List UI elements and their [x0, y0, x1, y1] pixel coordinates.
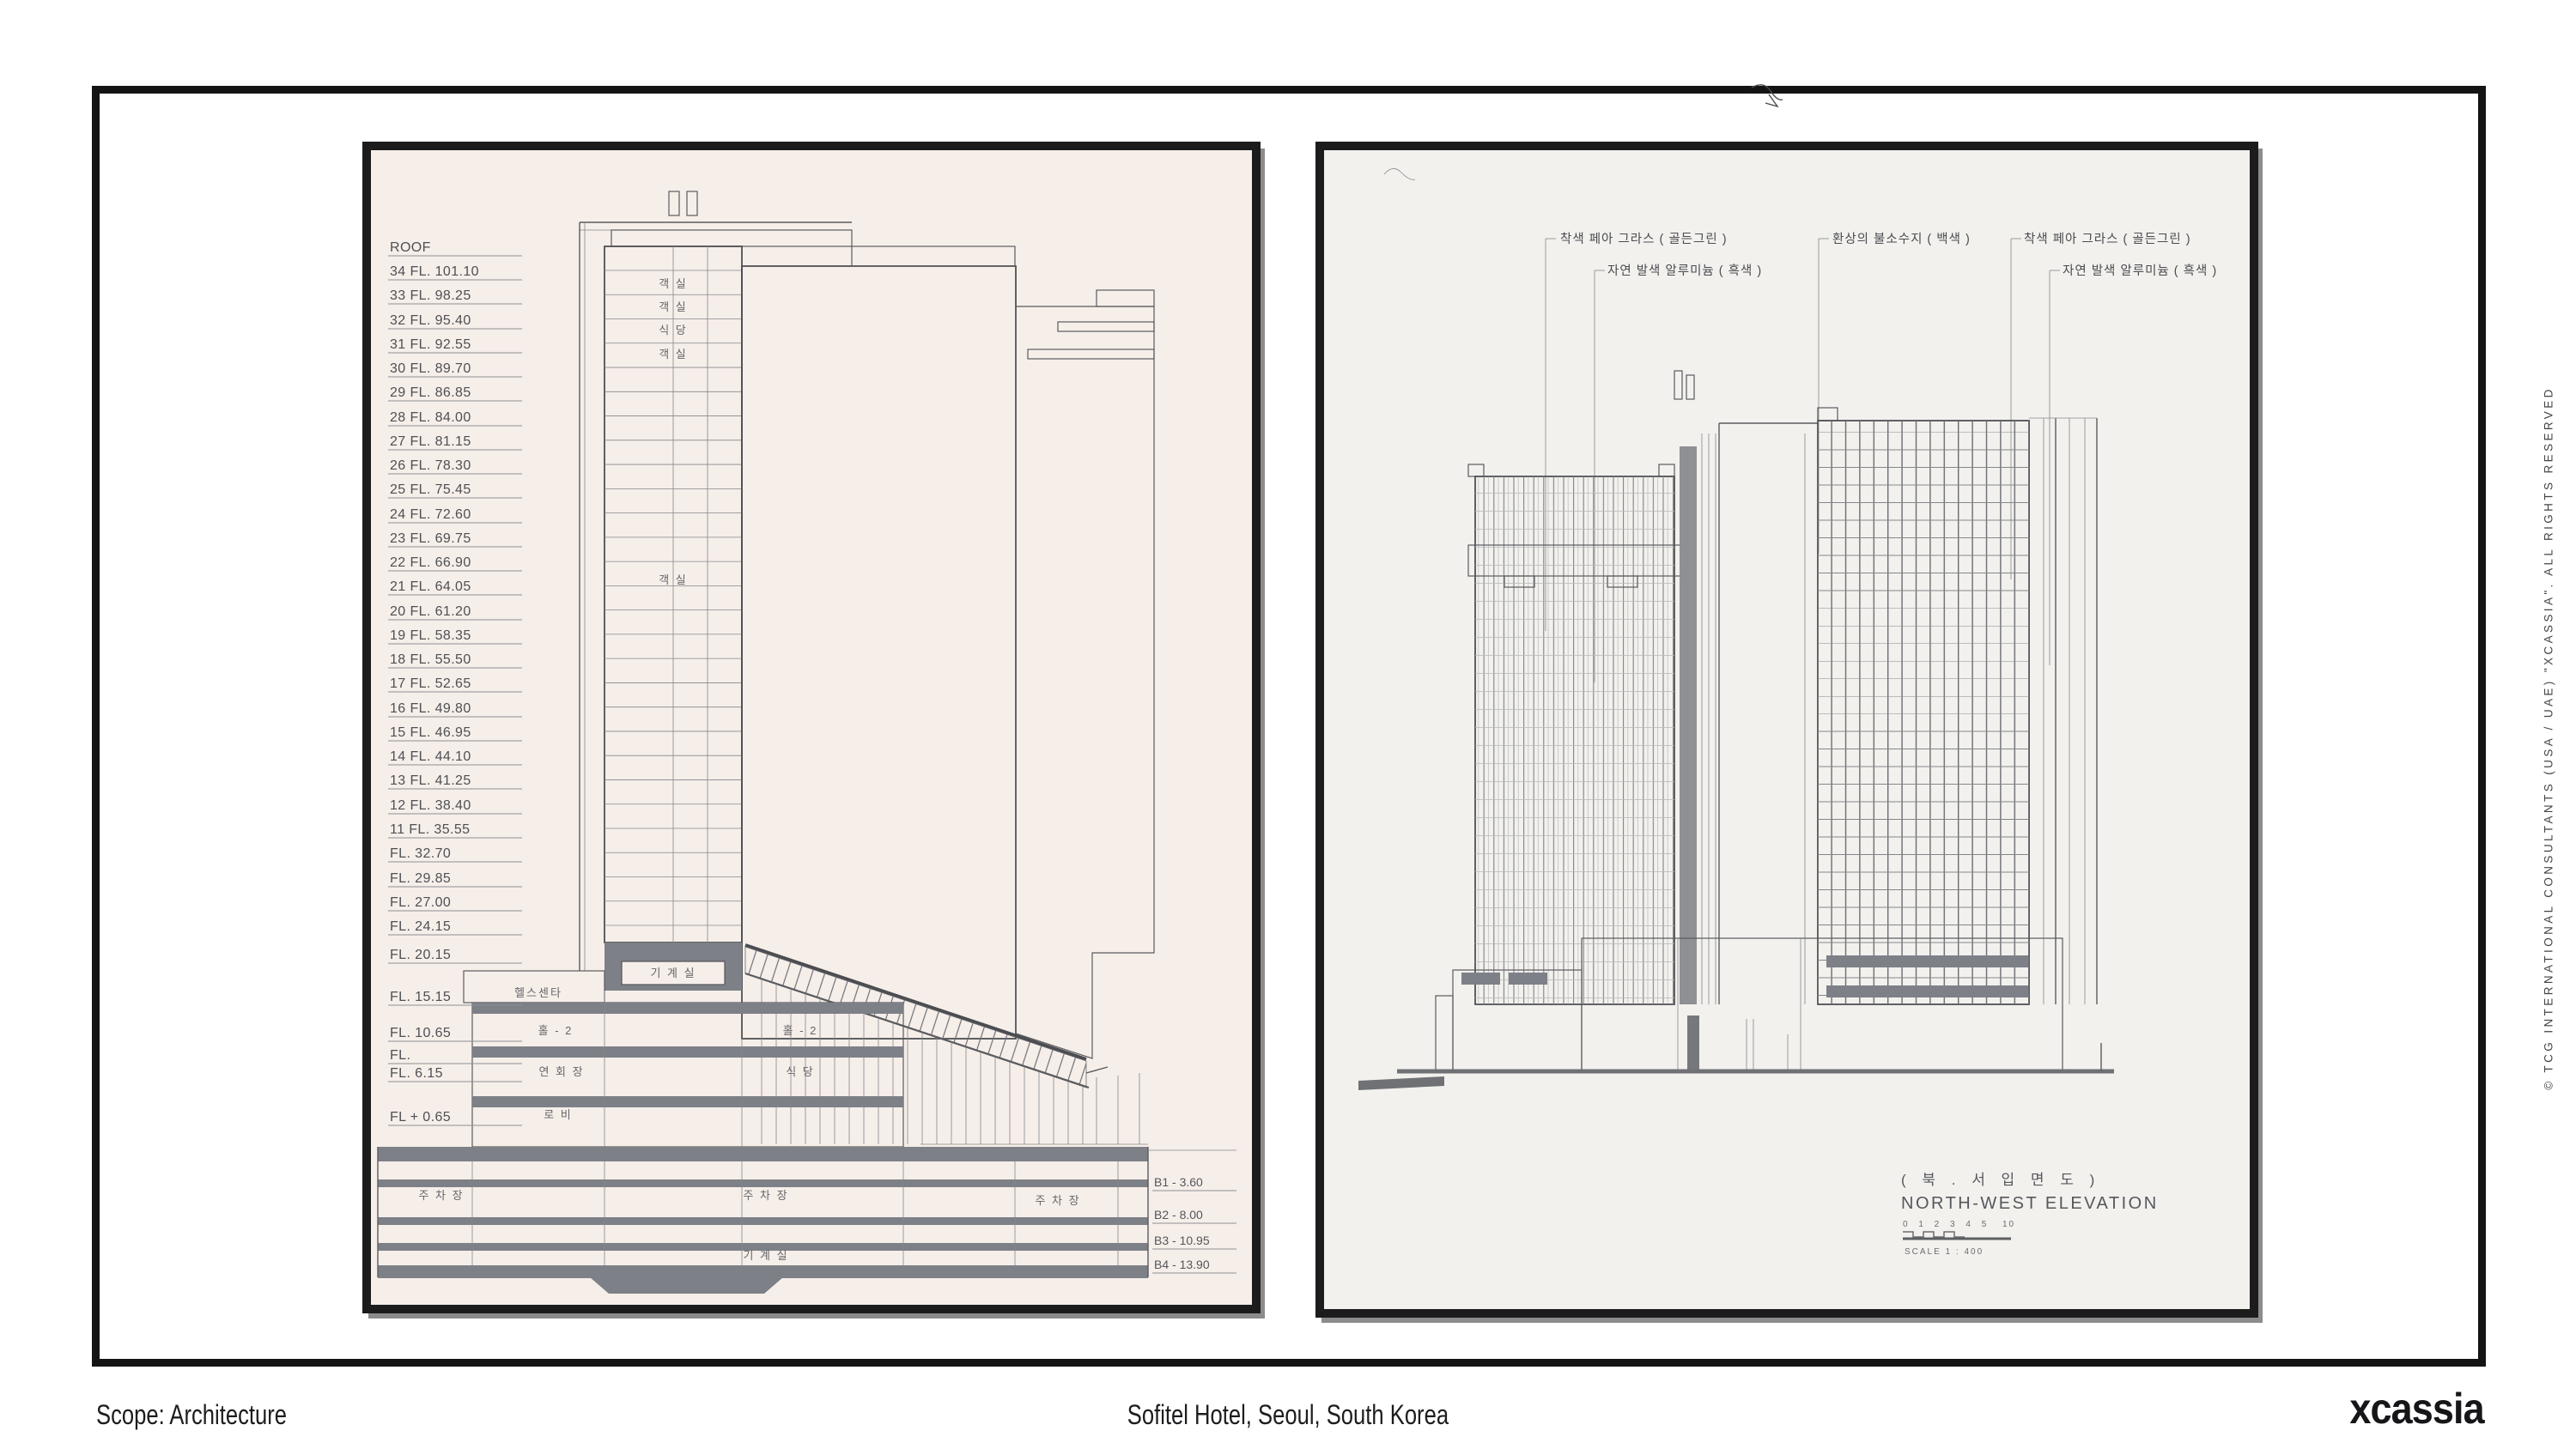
annotation-label: 환상의 불소수지 ( 백색 ) [1832, 232, 1971, 246]
room-label: 식 당 [786, 1065, 815, 1078]
floor-label: 11 FL. 35.55 [390, 822, 470, 837]
floor-label: 19 FL. 58.35 [390, 628, 471, 643]
right-tower-dark [1818, 408, 2029, 1004]
floor-label: FL. 32.70 [390, 846, 451, 861]
basement-level-labels: B1 - 3.60B2 - 8.00B3 - 10.95B4 - 13.90 [1152, 1175, 1236, 1273]
basement-label: B2 - 8.00 [1154, 1208, 1203, 1222]
floor-label: FL. 29.85 [390, 871, 451, 886]
tower-main-grid [742, 246, 1016, 1039]
right-drawing-panel: 착색 페아 그라스 ( 골든그린 )자연 발색 알루미늄 ( 흑색 )환상의 불… [1315, 142, 2258, 1318]
floor-label: 24 FL. 72.60 [390, 507, 471, 522]
scan-mark [1384, 168, 1415, 179]
floor-label: 33 FL. 98.25 [390, 288, 471, 303]
floor-label: FL. [390, 1048, 410, 1063]
ground-basements [378, 1147, 1236, 1294]
floor-label: FL. 6.15 [390, 1066, 443, 1081]
rooftop-antennas [1674, 371, 1694, 399]
floor-label: 25 FL. 75.45 [390, 482, 471, 497]
floor-label: 32 FL. 95.40 [390, 313, 471, 328]
scale-ticks: 0 1 2 3 4 5 [1903, 1220, 1990, 1229]
floor-label: 23 FL. 69.75 [390, 531, 471, 546]
room-label: 주 차 장 [418, 1189, 464, 1202]
floor-label: FL. 20.15 [390, 948, 451, 962]
floor-label: FL. 10.65 [390, 1026, 451, 1040]
room-label: 주 차 장 [743, 1189, 788, 1202]
floor-label: 22 FL. 66.90 [390, 555, 471, 570]
room-label: 식 당 [659, 324, 688, 336]
floor-label: FL + 0.65 [390, 1110, 451, 1125]
page: ROOF34 FL. 101.1033 FL. 98.2532 FL. 95.4… [0, 0, 2576, 1449]
floor-label: 13 FL. 41.25 [390, 773, 471, 788]
floor-label: FL. 27.00 [390, 895, 451, 910]
room-label: 연 회 장 [538, 1065, 584, 1078]
room-label: 객 실 [659, 348, 688, 361]
room-label: 주 차 장 [1035, 1194, 1080, 1207]
atrium-roof [745, 945, 1148, 1144]
room-label: 헬스센타 [514, 986, 562, 999]
floor-label: 28 FL. 84.00 [390, 410, 471, 425]
floor-label: ROOF [390, 240, 431, 255]
floor-label: 15 FL. 46.95 [390, 725, 471, 740]
floor-label: 34 FL. 101.10 [390, 264, 479, 279]
annotation-label: 착색 페아 그라스 ( 골든그린 ) [1560, 232, 1728, 246]
xcassia-logo: xcassia [2350, 1384, 2484, 1434]
left-tower [1468, 464, 1681, 1004]
north-west-elevation-drawing: 착색 페아 그라스 ( 골든그린 )자연 발색 알루미늄 ( 흑색 )환상의 불… [1324, 150, 2250, 1309]
floor-label: 12 FL. 38.40 [390, 798, 471, 813]
scale-end: 10 [2002, 1220, 2015, 1229]
scale-label: SCALE 1 : 400 [1905, 1247, 1984, 1257]
floor-label: 27 FL. 81.15 [390, 434, 471, 449]
roof-structures [580, 191, 852, 971]
room-label: 홀 - 2 [538, 1024, 574, 1037]
annotation-label: 착색 페아 그라스 ( 골든그린 ) [2024, 232, 2191, 246]
left-elevation-drawing: ROOF34 FL. 101.1033 FL. 98.2532 FL. 95.4… [371, 150, 1252, 1305]
tower-right-striped [1016, 290, 1154, 1058]
drawing-title-english: NORTH-WEST ELEVATION [1901, 1194, 2159, 1213]
project-caption: Sofitel Hotel, Seoul, South Korea [0, 1399, 2576, 1431]
floor-label: 29 FL. 86.85 [390, 385, 471, 400]
floor-label: 18 FL. 55.50 [390, 652, 471, 667]
room-label: 로 비 [544, 1108, 573, 1121]
room-labels: 객 실객 실식 당객 실객 실기 계 실헬스센타홀 - 2홀 - 2연 회 장식… [418, 277, 1080, 1262]
floor-label: 31 FL. 92.55 [390, 337, 471, 352]
floor-label: 14 FL. 44.10 [390, 749, 471, 764]
room-label: 객 실 [659, 573, 688, 586]
room-label: 객 실 [659, 277, 688, 290]
floor-label: FL. 24.15 [390, 919, 451, 934]
annotation-label: 자연 발색 알루미늄 ( 흑색 ) [2063, 263, 2217, 278]
floor-label: 26 FL. 78.30 [390, 458, 471, 473]
basement-label: B3 - 10.95 [1154, 1234, 1210, 1247]
floor-label: 17 FL. 52.65 [390, 676, 471, 691]
center-slot [1680, 423, 1818, 1004]
pen-scribble [1743, 77, 1795, 129]
copyright-text: © TCG INTERNATIONAL CONSULTANTS (USA / U… [2543, 386, 2555, 1090]
project-caption-text: Sofitel Hotel, Seoul, South Korea [1127, 1399, 1449, 1431]
room-label: 객 실 [659, 300, 688, 313]
left-drawing-panel: ROOF34 FL. 101.1033 FL. 98.2532 FL. 95.4… [362, 142, 1261, 1313]
room-label: 기 계 실 [650, 967, 696, 979]
room-label: 홀 - 2 [783, 1024, 818, 1037]
room-label: 기 계 실 [743, 1249, 788, 1262]
drawing-title-korean: ( 북 . 서 입 면 도 ) [1901, 1172, 2100, 1188]
right-wall-lines [2029, 418, 2097, 1004]
floor-label: 20 FL. 61.20 [390, 604, 471, 619]
floor-label: 21 FL. 64.05 [390, 579, 471, 594]
floor-label: 16 FL. 49.80 [390, 701, 471, 716]
title-block: ( 북 . 서 입 면 도 ) NORTH-WEST ELEVATION 0 1… [1901, 1172, 2159, 1257]
floor-level-labels: ROOF34 FL. 101.1033 FL. 98.2532 FL. 95.4… [388, 240, 522, 1125]
basement-label: B1 - 3.60 [1154, 1175, 1203, 1189]
podium-ground [1358, 938, 2114, 1090]
annotation-label: 자연 발색 알루미늄 ( 흑색 ) [1607, 263, 1762, 278]
basement-label: B4 - 13.90 [1154, 1258, 1210, 1271]
floor-label: FL. 15.15 [390, 990, 451, 1004]
floor-label: 30 FL. 89.70 [390, 361, 471, 376]
scale-bar-teeth [1903, 1232, 1965, 1237]
